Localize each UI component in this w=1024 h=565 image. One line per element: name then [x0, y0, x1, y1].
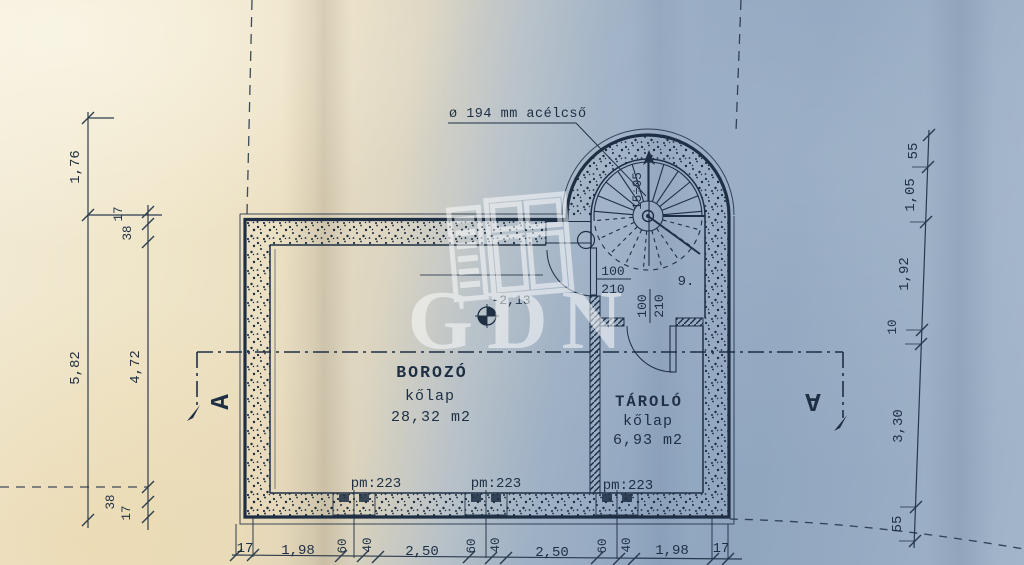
room-tarolo-area: 6,93 m2 — [613, 432, 683, 449]
room-borozo-area: 28,32 m2 — [391, 409, 471, 426]
section-arrow-right — [834, 415, 847, 431]
dim-left-inner-4: 17 — [120, 505, 134, 520]
stair-run-label: 15÷05 — [631, 172, 645, 210]
dim-left-inner-3: 38 — [104, 494, 118, 509]
steel-pipe-circle — [578, 232, 595, 249]
dim-bottom-9: 40 — [620, 537, 634, 552]
step-number: 9. — [678, 274, 695, 290]
floor-plan-drawing: A A 1,76 — [0, 0, 1024, 565]
room-tarolo-label: TÁROLÓ kőlap 6,93 m2 — [613, 393, 683, 449]
plinth-label-1: pm:223 — [351, 476, 401, 492]
dim-left-outer-1: 5,82 — [68, 351, 84, 385]
dim-right-2: 1,92 — [897, 257, 913, 291]
door-size-tarolo: 100 210 — [635, 289, 667, 323]
dim-bottom-8: 60 — [596, 538, 610, 553]
dim-right-4: 3,30 — [891, 409, 907, 443]
door-height: 210 — [652, 294, 667, 317]
dim-right-5: 55 — [890, 516, 906, 533]
dim-bottom-4: 2,50 — [405, 544, 439, 560]
dim-bottom-0: 17 — [237, 541, 254, 557]
watermark-text: GDN — [408, 274, 637, 367]
room-borozo-label: BOROZÓ kőlap 28,32 m2 — [391, 363, 471, 426]
dim-left-inner-2: 4,72 — [128, 350, 144, 384]
section-letter-right: A — [805, 386, 821, 416]
dim-bottom-5: 60 — [465, 538, 479, 553]
room-tarolo-name: TÁROLÓ — [615, 393, 683, 411]
dim-bottom-6: 40 — [489, 537, 503, 552]
dim-left-inner-0: 17 — [112, 206, 126, 221]
dim-left-inner-1: 38 — [121, 225, 135, 240]
room-borozo-finish: kőlap — [405, 388, 455, 405]
dim-left-outer-0: 1,76 — [68, 150, 84, 184]
dim-bottom-1: 1,98 — [281, 543, 315, 559]
section-letter-left: A — [206, 394, 236, 410]
dim-bottom-7: 2,50 — [535, 545, 569, 561]
section-arrow-left — [187, 405, 200, 421]
room-tarolo-finish: kőlap — [623, 413, 673, 430]
dim-right-3: 10 — [886, 319, 900, 334]
dim-right-0: 55 — [906, 143, 922, 160]
dim-bottom-11: 17 — [713, 541, 730, 557]
dim-bottom-2: 60 — [336, 538, 350, 553]
plinth-label-3: pm:223 — [603, 478, 653, 494]
dim-right-1: 1,05 — [903, 178, 919, 212]
dim-bottom-10: 1,98 — [655, 543, 689, 559]
plinth-label-2: pm:223 — [471, 476, 521, 492]
scanned-floor-plan: A A 1,76 — [0, 0, 1024, 565]
pipe-note-text: ø 194 mm acélcső — [449, 107, 587, 122]
dim-bottom-3: 40 — [361, 537, 375, 552]
door-width: 100 — [635, 294, 650, 317]
